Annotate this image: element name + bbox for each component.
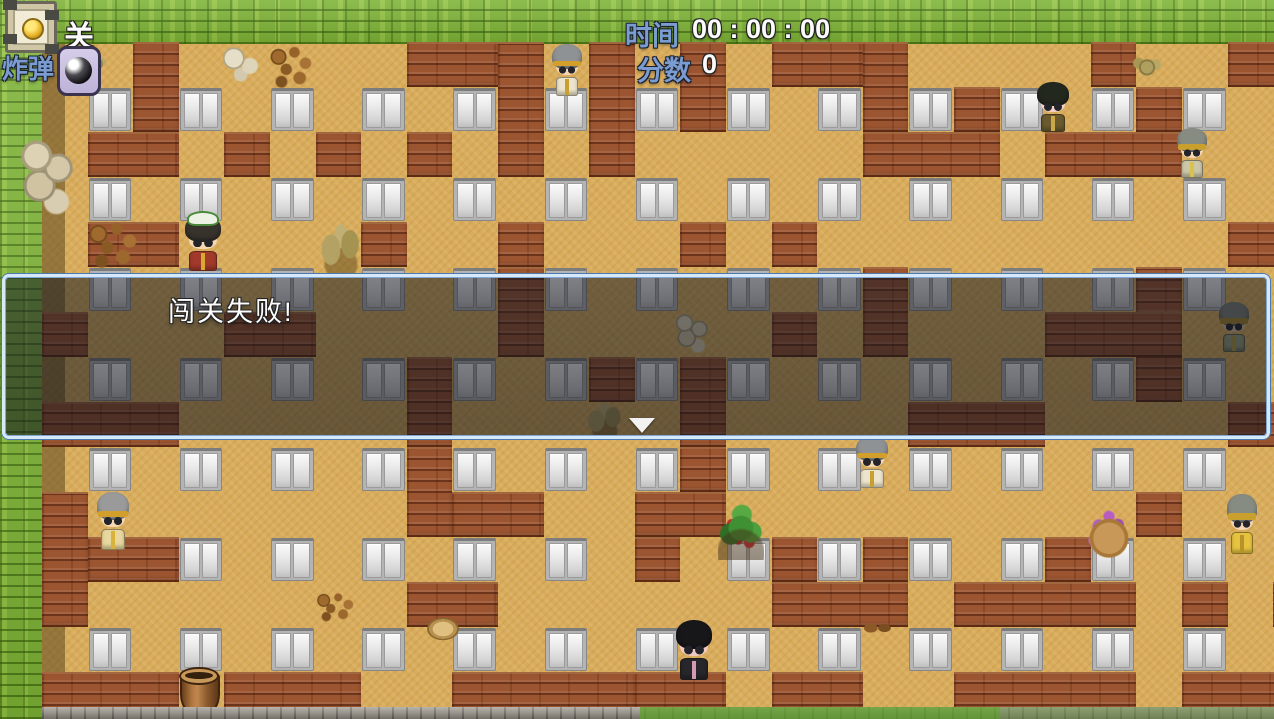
brick-wall-block	[361, 222, 407, 267]
door-block	[453, 448, 496, 491]
door-panel	[549, 453, 565, 488]
npc-girl-green-hat	[183, 215, 223, 271]
door-panel	[384, 543, 400, 578]
door-panel	[932, 633, 948, 668]
door-panel	[93, 453, 109, 488]
brick-wall-block	[498, 222, 544, 267]
brick-wall-block	[1136, 87, 1182, 132]
npc-soldier-left	[96, 492, 130, 550]
door-panel	[1096, 93, 1112, 128]
npc-dark-fighter	[1036, 82, 1070, 132]
brick-wall-block	[635, 492, 726, 537]
door-panel	[1205, 453, 1221, 488]
brick-wall-block	[680, 222, 726, 267]
door-panel	[822, 633, 838, 668]
npc-eyes	[103, 516, 122, 525]
dirt-decor	[860, 620, 896, 636]
door-panel	[932, 183, 948, 218]
door-panel	[457, 183, 473, 218]
door-panel	[658, 453, 674, 488]
brick-wall-block	[635, 537, 681, 582]
door-panel	[384, 183, 400, 218]
npc-eyes	[683, 645, 705, 655]
door-block	[1001, 448, 1044, 491]
door-block	[362, 448, 405, 491]
door-panel	[913, 93, 929, 128]
door-panel	[202, 633, 218, 668]
bottom-wall-strip	[42, 707, 1274, 719]
door-block	[636, 178, 679, 221]
door-panel	[1005, 183, 1021, 218]
door-panel	[1187, 453, 1203, 488]
door-panel	[202, 93, 218, 128]
door-block	[909, 178, 952, 221]
door-block	[1092, 88, 1135, 131]
brick-wall-block	[772, 222, 818, 267]
door-block	[271, 448, 314, 491]
door-panel	[731, 453, 747, 488]
brick-wall-block	[42, 492, 88, 627]
door-panel	[932, 453, 948, 488]
brick-wall-block	[1045, 132, 1182, 177]
pebbles-decor	[86, 220, 142, 270]
door-block	[1092, 628, 1135, 671]
message-text: 闯关失败!	[168, 290, 294, 329]
door-block	[271, 628, 314, 671]
door-panel	[111, 633, 127, 668]
door-panel	[640, 633, 656, 668]
door-block	[909, 538, 952, 581]
door-block	[362, 538, 405, 581]
door-panel	[93, 183, 109, 218]
brick-wall-block	[772, 42, 863, 87]
door-block	[362, 178, 405, 221]
door-panel	[366, 453, 382, 488]
door-block	[909, 628, 952, 671]
door-block	[545, 628, 588, 671]
door-panel	[567, 183, 583, 218]
door-panel	[202, 453, 218, 488]
door-panel	[549, 183, 565, 218]
door-block	[180, 88, 223, 131]
door-panel	[1023, 453, 1039, 488]
brick-wall-block	[498, 42, 544, 177]
door-block	[727, 88, 770, 131]
brick-wall-block	[954, 582, 1136, 627]
door-block	[1183, 628, 1226, 671]
npc-sash	[201, 253, 206, 270]
brick-wall-block	[1228, 42, 1274, 87]
door-block	[727, 628, 770, 671]
door-panel	[384, 633, 400, 668]
npc-darkhair-bottom	[674, 620, 714, 680]
door-panel	[384, 453, 400, 488]
door-panel	[1205, 633, 1221, 668]
door-block	[89, 628, 132, 671]
brick-wall-block	[407, 132, 453, 177]
door-block	[727, 178, 770, 221]
door-block	[362, 628, 405, 671]
npc-soldier-right	[1176, 128, 1208, 178]
message-window[interactable]: 闯关失败!	[2, 274, 1270, 439]
npc-eyes	[862, 458, 881, 466]
door-panel	[1187, 93, 1203, 128]
door-block	[1001, 178, 1044, 221]
door-panel	[93, 93, 109, 128]
door-block	[636, 448, 679, 491]
door-panel	[731, 93, 747, 128]
door-panel	[293, 543, 309, 578]
door-panel	[275, 453, 291, 488]
door-panel	[932, 93, 948, 128]
door-block	[545, 538, 588, 581]
brick-wall-block	[133, 42, 179, 132]
stones-decor	[18, 136, 80, 216]
door-panel	[1005, 453, 1021, 488]
door-panel	[822, 183, 838, 218]
door-panel	[476, 543, 492, 578]
door-panel	[1023, 633, 1039, 668]
door-panel	[476, 93, 492, 128]
door-panel	[1187, 633, 1203, 668]
door-block	[453, 538, 496, 581]
door-panel	[93, 633, 109, 668]
door-panel	[840, 93, 856, 128]
door-panel	[184, 633, 200, 668]
door-panel	[366, 93, 382, 128]
brick-wall-block	[1228, 222, 1274, 267]
door-panel	[658, 633, 674, 668]
door-panel	[640, 93, 656, 128]
door-panel	[275, 93, 291, 128]
door-panel	[1114, 93, 1130, 128]
brick-wall-block	[224, 132, 270, 177]
door-panel	[1205, 543, 1221, 578]
game-viewport[interactable]: 闯关失败! 关 炸弹 时间 00 : 00 : 00 分数 0	[0, 0, 1274, 719]
door-panel	[1187, 543, 1203, 578]
door-panel	[457, 543, 473, 578]
npc-sash	[1051, 116, 1055, 131]
door-block	[727, 448, 770, 491]
pebbles-decor	[268, 44, 316, 90]
door-block	[1183, 538, 1226, 581]
door-block	[89, 448, 132, 491]
npc-eyes	[1183, 149, 1201, 157]
door-panel	[1096, 453, 1112, 488]
npc-sash	[1190, 162, 1194, 177]
door-panel	[1114, 633, 1130, 668]
door-panel	[1114, 453, 1130, 488]
door-panel	[640, 183, 656, 218]
door-panel	[366, 183, 382, 218]
brick-wall-block	[863, 132, 1000, 177]
npc-sash	[870, 471, 874, 487]
door-block	[180, 628, 223, 671]
door-panel	[1096, 183, 1112, 218]
door-panel	[1005, 93, 1021, 128]
plant-dry-decor	[316, 220, 366, 274]
brick-wall-block	[680, 447, 726, 492]
door-panel	[275, 633, 291, 668]
door-panel	[184, 453, 200, 488]
brick-wall-block	[452, 492, 543, 537]
door-panel	[913, 543, 929, 578]
door-panel	[640, 453, 656, 488]
door-block	[545, 178, 588, 221]
door-panel	[293, 633, 309, 668]
door-panel	[567, 453, 583, 488]
npc-soldier-top	[551, 44, 583, 96]
brick-wall-block	[1136, 492, 1182, 537]
door-panel	[822, 93, 838, 128]
door-panel	[366, 633, 382, 668]
door-block	[909, 448, 952, 491]
brick-wall-block	[1182, 582, 1228, 627]
berry-bush-decor	[718, 502, 764, 560]
door-panel	[275, 543, 291, 578]
door-panel	[913, 453, 929, 488]
door-panel	[822, 543, 838, 578]
door-block	[636, 628, 679, 671]
door-panel	[749, 453, 765, 488]
door-panel	[1187, 183, 1203, 218]
brick-wall-block	[407, 447, 453, 537]
brick-wall-block	[407, 42, 498, 87]
door-panel	[476, 633, 492, 668]
grass-border-top	[0, 0, 1274, 44]
door-panel	[731, 633, 747, 668]
door-panel	[293, 93, 309, 128]
door-panel	[366, 543, 382, 578]
flowers-decor	[1084, 506, 1134, 558]
brick-wall-block	[863, 42, 909, 132]
door-panel	[749, 633, 765, 668]
continue-indicator-icon	[629, 418, 655, 433]
door-panel	[840, 183, 856, 218]
door-panel	[567, 633, 583, 668]
bush-dry-decor	[86, 52, 108, 74]
door-panel	[1205, 183, 1221, 218]
npc-hat	[187, 211, 219, 227]
brick-wall-block	[680, 42, 726, 132]
brick-wall-block	[772, 537, 818, 582]
brick-wall-block	[589, 42, 635, 177]
door-panel	[184, 93, 200, 128]
door-block	[453, 178, 496, 221]
door-panel	[567, 93, 583, 128]
brick-wall-block	[88, 132, 179, 177]
door-block	[818, 178, 861, 221]
door-panel	[457, 453, 473, 488]
door-panel	[111, 93, 127, 128]
door-panel	[1023, 183, 1039, 218]
door-panel	[567, 543, 583, 578]
door-panel	[293, 183, 309, 218]
npc-soldier-mid	[855, 436, 889, 488]
door-panel	[749, 183, 765, 218]
door-panel	[658, 93, 674, 128]
door-panel	[913, 183, 929, 218]
bush-dry-decor	[1130, 52, 1164, 80]
door-block	[1183, 88, 1226, 131]
door-panel	[549, 93, 565, 128]
door-block	[1092, 448, 1135, 491]
door-panel	[1005, 543, 1021, 578]
npc-sash	[111, 531, 115, 548]
npc-sash	[692, 661, 697, 679]
door-panel	[840, 543, 856, 578]
npc-eyes	[192, 239, 214, 248]
pebbles-decor	[314, 592, 358, 622]
door-panel	[184, 543, 200, 578]
door-block	[636, 88, 679, 131]
bottom-moss-segment	[1000, 707, 1274, 719]
door-block	[89, 178, 132, 221]
door-block	[818, 628, 861, 671]
door-block	[545, 448, 588, 491]
door-block	[271, 538, 314, 581]
door-block	[271, 178, 314, 221]
npc-sash	[565, 79, 569, 95]
npc-eyes	[1043, 103, 1062, 111]
bones-decor	[220, 45, 266, 83]
door-block	[180, 538, 223, 581]
door-block	[1001, 538, 1044, 581]
door-panel	[457, 93, 473, 128]
door-block	[453, 88, 496, 131]
door-panel	[275, 183, 291, 218]
door-panel	[476, 453, 492, 488]
door-block	[1183, 448, 1226, 491]
npc-eyes	[558, 66, 576, 74]
door-block	[1183, 178, 1226, 221]
door-panel	[913, 633, 929, 668]
door-panel	[293, 453, 309, 488]
door-panel	[111, 453, 127, 488]
door-block	[818, 88, 861, 131]
door-block	[89, 88, 132, 131]
brick-wall-block	[954, 87, 1000, 132]
door-block	[1001, 628, 1044, 671]
door-panel	[749, 93, 765, 128]
door-panel	[1114, 183, 1130, 218]
door-panel	[384, 93, 400, 128]
door-panel	[476, 183, 492, 218]
npc-eyes	[1233, 519, 1251, 529]
door-panel	[1205, 93, 1221, 128]
door-panel	[202, 543, 218, 578]
door-panel	[658, 183, 674, 218]
door-block	[818, 538, 861, 581]
door-block	[180, 448, 223, 491]
door-panel	[932, 543, 948, 578]
door-panel	[1096, 633, 1112, 668]
npc-monk-right	[1226, 494, 1258, 554]
door-panel	[1023, 543, 1039, 578]
npc-sash	[1240, 535, 1244, 553]
pot-decor	[424, 615, 462, 643]
brick-wall-block	[863, 537, 909, 582]
door-panel	[731, 183, 747, 218]
door-panel	[111, 183, 127, 218]
door-panel	[822, 453, 838, 488]
brick-wall-block	[316, 132, 362, 177]
door-block	[909, 88, 952, 131]
door-block	[271, 88, 314, 131]
door-panel	[840, 633, 856, 668]
door-block	[362, 88, 405, 131]
door-panel	[549, 543, 565, 578]
door-panel	[1005, 633, 1021, 668]
door-panel	[549, 633, 565, 668]
door-block	[1092, 178, 1135, 221]
bottom-grass-segment	[640, 707, 1000, 719]
